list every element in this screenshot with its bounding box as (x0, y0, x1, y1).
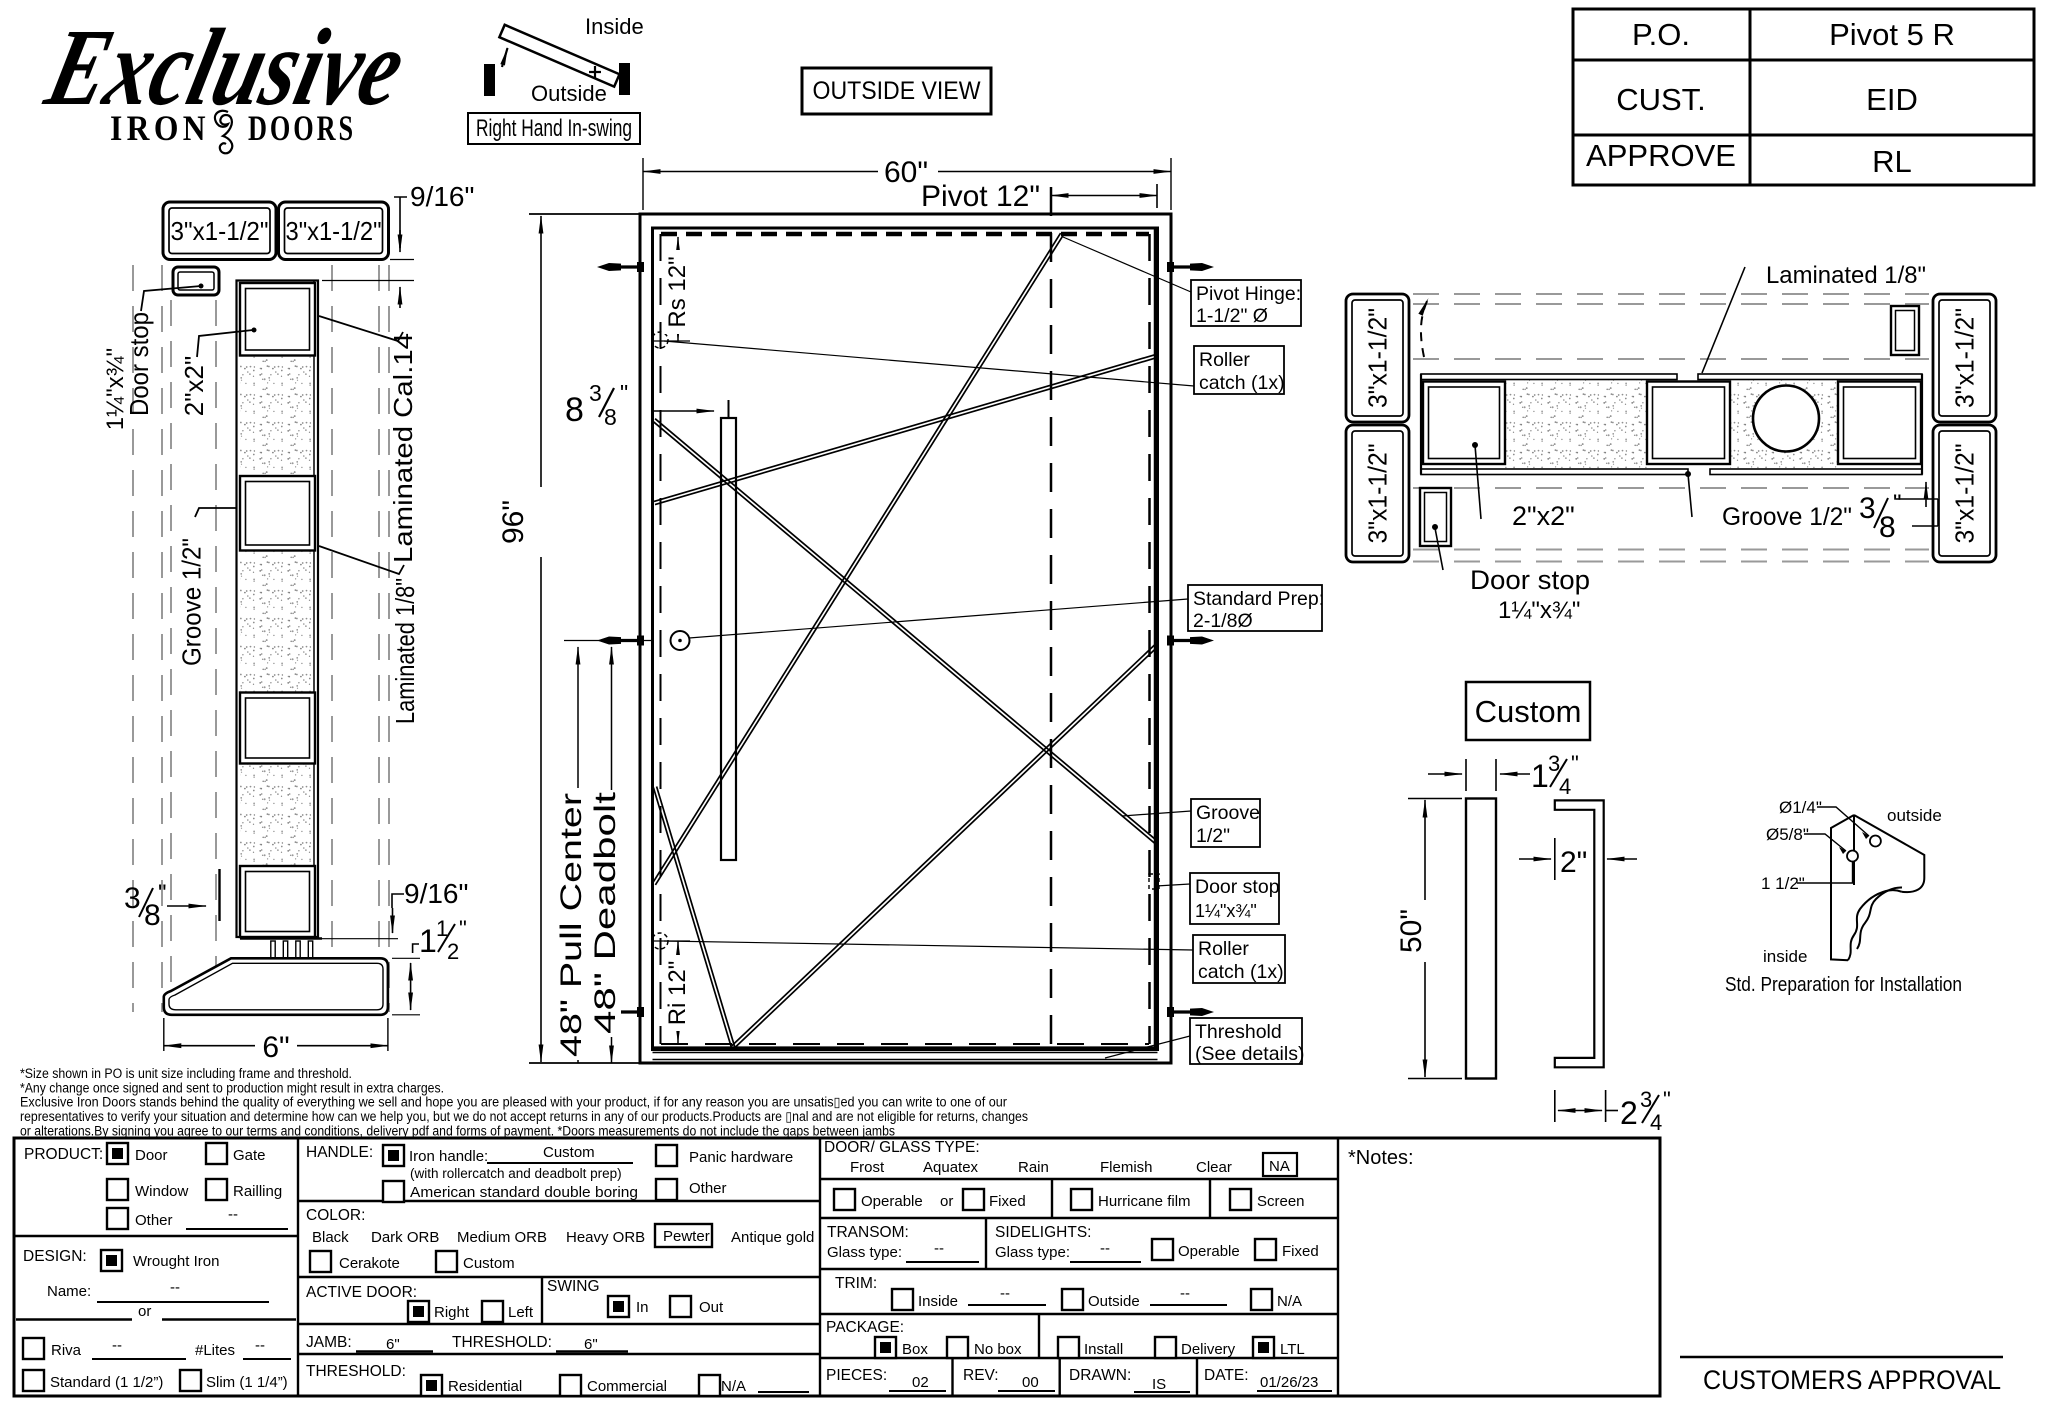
svg-text:Std. Preparation for Installat: Std. Preparation for Installation (1725, 974, 1962, 996)
svg-text:Exclusive Iron Doors stands be: Exclusive Iron Doors stands behind the q… (20, 1095, 1007, 1110)
svg-text:*Notes:: *Notes: (1348, 1147, 1414, 1169)
svg-text:50": 50" (1395, 909, 1428, 953)
svg-text:": " (1663, 1087, 1671, 1112)
svg-text:THRESHOLD:: THRESHOLD: (452, 1334, 552, 1351)
svg-text:inside: inside (1763, 947, 1807, 966)
svg-text:APPROVE: APPROVE (1586, 138, 1736, 173)
svg-text:--: -- (255, 1337, 265, 1354)
svg-text:3"x1-1/2": 3"x1-1/2" (1363, 308, 1393, 408)
svg-text:Commercial: Commercial (587, 1378, 667, 1395)
svg-text:Railling: Railling (233, 1183, 282, 1200)
svg-text:P.O.: P.O. (1632, 17, 1690, 52)
svg-text:catch (1x): catch (1x) (1199, 372, 1285, 394)
svg-text:Other: Other (135, 1212, 173, 1229)
svg-text:Residential: Residential (448, 1378, 522, 1395)
svg-text:Gate: Gate (233, 1147, 266, 1164)
svg-text:Cerakote: Cerakote (339, 1255, 400, 1272)
svg-text:3"x1-1/2": 3"x1-1/2" (286, 216, 382, 246)
svg-text:Medium ORB: Medium ORB (457, 1229, 547, 1246)
svg-text:Black: Black (312, 1229, 349, 1246)
svg-text:Heavy ORB: Heavy ORB (566, 1229, 645, 1246)
svg-text:Laminated 1/8": Laminated 1/8" (390, 578, 420, 724)
svg-text:N/A: N/A (1277, 1293, 1302, 1310)
svg-text:Door stop: Door stop (1195, 876, 1280, 898)
svg-text:or: or (138, 1303, 151, 1320)
svg-text:3"x1-1/2": 3"x1-1/2" (1950, 308, 1980, 408)
svg-text:Left: Left (508, 1304, 534, 1321)
svg-text:Groove 1/2": Groove 1/2" (1722, 503, 1852, 531)
svg-text:": " (459, 916, 467, 941)
svg-text:Custom: Custom (463, 1255, 515, 1272)
svg-text:Panic hardware: Panic hardware (689, 1149, 793, 1166)
svg-text:DOOR/ GLASS TYPE:: DOOR/ GLASS TYPE: (824, 1139, 980, 1156)
svg-text:Laminated 1/8": Laminated 1/8" (1766, 262, 1926, 289)
svg-text:Frost: Frost (850, 1159, 885, 1176)
svg-text:or alterations.By signing you: or alterations.By signing you agree to o… (20, 1123, 895, 1138)
svg-text:Groove 1/2": Groove 1/2" (177, 538, 207, 666)
svg-text:9/16": 9/16" (410, 181, 474, 212)
svg-text:Fixed: Fixed (1282, 1243, 1319, 1260)
svg-text:Antique gold: Antique gold (731, 1229, 814, 1246)
svg-text:Operable: Operable (1178, 1243, 1240, 1260)
svg-text:Aquatex: Aquatex (923, 1159, 979, 1176)
svg-text:In: In (636, 1299, 649, 1316)
svg-text:Roller: Roller (1198, 938, 1249, 960)
svg-text:Pivot 12": Pivot 12" (921, 180, 1040, 213)
svg-text:3: 3 (589, 380, 602, 406)
svg-text:2"x2": 2"x2" (1512, 501, 1575, 531)
svg-text:--: -- (1100, 1240, 1110, 1257)
svg-text:PIECES:: PIECES: (826, 1367, 887, 1384)
svg-text:3"x1-1/2": 3"x1-1/2" (1363, 444, 1393, 544)
svg-text:Other: Other (689, 1180, 727, 1197)
svg-text:01/26/23: 01/26/23 (1260, 1374, 1318, 1391)
svg-text:Glass type:: Glass type: (995, 1244, 1070, 1261)
svg-text:--: -- (1180, 1285, 1190, 1302)
svg-text:--: -- (112, 1337, 122, 1354)
svg-text:ACTIVE DOOR:: ACTIVE DOOR: (306, 1284, 417, 1301)
svg-text:Rain: Rain (1018, 1159, 1049, 1176)
svg-text:": " (1893, 490, 1902, 517)
svg-text:Rs 12": Rs 12" (664, 256, 691, 327)
svg-text:2: 2 (447, 939, 459, 964)
svg-text:DATE:: DATE: (1204, 1367, 1249, 1384)
svg-text:": " (158, 880, 167, 907)
svg-text:THRESHOLD:: THRESHOLD: (306, 1363, 406, 1380)
svg-text:(See details): (See details) (1195, 1043, 1304, 1065)
svg-text:DOORS: DOORS (248, 108, 356, 148)
svg-text:Name:: Name: (47, 1283, 91, 1300)
svg-text:Hurricane film: Hurricane film (1098, 1193, 1191, 1210)
svg-text:4: 4 (1650, 1110, 1662, 1135)
svg-text:8: 8 (565, 391, 584, 429)
svg-text:American standard double borin: American standard double boring (410, 1184, 638, 1201)
svg-text:Groove: Groove (1196, 802, 1260, 824)
svg-text:--: -- (228, 1206, 238, 1223)
svg-text:2-1/8Ø: 2-1/8Ø (1193, 610, 1253, 632)
svg-text:1: 1 (1531, 758, 1549, 794)
svg-text:No box: No box (974, 1341, 1022, 1358)
svg-text:2": 2" (1560, 846, 1587, 879)
svg-text:Pivot Hinge:: Pivot Hinge: (1196, 283, 1301, 305)
svg-text:Riva: Riva (51, 1342, 82, 1359)
svg-text:Delivery: Delivery (1181, 1341, 1236, 1358)
svg-text:TRANSOM:: TRANSOM: (827, 1224, 909, 1241)
svg-text:2"x2": 2"x2" (179, 356, 209, 416)
svg-text:Roller: Roller (1199, 349, 1250, 371)
svg-text:Ø1/4": Ø1/4" (1779, 798, 1822, 817)
svg-text:N/A: N/A (721, 1378, 746, 1395)
svg-text:catch (1x): catch (1x) (1198, 961, 1284, 983)
svg-text:TRIM:: TRIM: (835, 1275, 877, 1292)
svg-text:Inside: Inside (585, 14, 644, 39)
svg-text:REV:: REV: (963, 1367, 999, 1384)
svg-text:LTL: LTL (1280, 1341, 1305, 1358)
svg-text:Threshold: Threshold (1195, 1021, 1282, 1043)
svg-text:Pewter: Pewter (663, 1228, 710, 1245)
svg-text:*Any change once signed and se: *Any change once signed and sent to prod… (20, 1080, 444, 1095)
svg-text:Outside: Outside (1088, 1293, 1140, 1310)
svg-text:Window: Window (135, 1183, 189, 1200)
svg-text:Box: Box (902, 1341, 928, 1358)
svg-text:COLOR:: COLOR: (306, 1207, 365, 1224)
svg-text:OUTSIDE VIEW: OUTSIDE VIEW (813, 77, 981, 105)
svg-text:48" Deadbolt: 48" Deadbolt (589, 791, 622, 1034)
svg-text:(with rollercatch and deadbolt: (with rollercatch and deadbolt prep) (410, 1166, 622, 1181)
svg-text:Slim (1 1/4”): Slim (1 1/4”) (206, 1374, 288, 1391)
svg-text:SWING: SWING (547, 1278, 600, 1295)
svg-text:Outside: Outside (531, 81, 607, 106)
svg-text:PRODUCT:: PRODUCT: (24, 1146, 103, 1163)
svg-text:Pivot 5 R: Pivot 5 R (1829, 17, 1955, 52)
svg-text:or: or (940, 1193, 953, 1210)
svg-text:Dark ORB: Dark ORB (371, 1229, 439, 1246)
svg-text:9/16": 9/16" (404, 878, 468, 909)
svg-text:1: 1 (419, 923, 437, 959)
svg-text:": " (1571, 751, 1579, 776)
svg-text:Ø5/8": Ø5/8" (1766, 825, 1809, 844)
svg-text:1¼"x¾": 1¼"x¾" (102, 348, 129, 430)
svg-text:1/2": 1/2" (1196, 825, 1230, 847)
svg-text:Door stop: Door stop (1470, 565, 1590, 595)
svg-text:Right Hand In-swing: Right Hand In-swing (476, 115, 632, 142)
svg-text:Install: Install (1084, 1341, 1123, 1358)
svg-text:Screen: Screen (1257, 1193, 1305, 1210)
svg-text:3: 3 (1859, 492, 1876, 525)
svg-text:Custom: Custom (1475, 694, 1582, 729)
svg-text:Standard (1 1/2”): Standard (1 1/2”) (50, 1374, 163, 1391)
svg-text:48" Pull Center: 48" Pull Center (555, 793, 588, 1057)
svg-text:EID: EID (1866, 82, 1918, 117)
svg-text:3"x1-1/2": 3"x1-1/2" (1950, 444, 1980, 544)
svg-text:1¼"x¾": 1¼"x¾" (1498, 597, 1580, 624)
svg-text:1-1/2" Ø: 1-1/2" Ø (1196, 305, 1268, 327)
svg-text:Inside: Inside (918, 1293, 958, 1310)
svg-text:Standard Prep:: Standard Prep: (1193, 588, 1324, 610)
svg-text:SIDELIGHTS:: SIDELIGHTS: (995, 1224, 1091, 1241)
svg-text:RL: RL (1872, 144, 1912, 179)
svg-text:Door: Door (135, 1147, 168, 1164)
svg-text:representatives to verify your: representatives to verify your situation… (20, 1109, 1028, 1124)
svg-text:3"x1-1/2": 3"x1-1/2" (171, 216, 269, 246)
svg-text:Right: Right (434, 1304, 470, 1321)
svg-text:CUSTOMERS APPROVAL: CUSTOMERS APPROVAL (1703, 1365, 2001, 1395)
svg-text:Flemish: Flemish (1100, 1159, 1153, 1176)
svg-text:Custom: Custom (543, 1144, 595, 1161)
svg-text:02: 02 (912, 1374, 929, 1391)
svg-text:": " (620, 380, 628, 406)
svg-text:Wrought Iron: Wrought Iron (133, 1253, 219, 1270)
svg-text:HANDLE:: HANDLE: (306, 1144, 373, 1161)
svg-text:*Size shown in PO is unit size: *Size shown in PO is unit size including… (20, 1066, 352, 1081)
svg-text:3: 3 (124, 882, 141, 915)
svg-text:PACKAGE:: PACKAGE: (826, 1319, 904, 1336)
svg-text:#Lites: #Lites (195, 1342, 235, 1359)
svg-text:96": 96" (497, 500, 530, 544)
svg-text:Ri 12": Ri 12" (664, 961, 691, 1026)
svg-text:00: 00 (1022, 1374, 1039, 1391)
svg-text:DESIGN:: DESIGN: (23, 1248, 87, 1265)
svg-text:IS: IS (1152, 1376, 1166, 1393)
svg-text:Clear: Clear (1196, 1159, 1232, 1176)
svg-text:--: -- (170, 1279, 180, 1296)
svg-text:Laminated Cal.14: Laminated Cal.14 (388, 333, 418, 563)
svg-text:IRON: IRON (110, 108, 210, 148)
svg-text:Glass type:: Glass type: (827, 1244, 902, 1261)
svg-text:--: -- (1000, 1285, 1010, 1302)
svg-text:outside: outside (1887, 806, 1942, 825)
svg-text:6": 6" (262, 1031, 289, 1064)
svg-text:Out: Out (699, 1299, 724, 1316)
svg-text:Operable: Operable (861, 1193, 923, 1210)
svg-text:JAMB:: JAMB: (306, 1334, 352, 1351)
svg-text:4: 4 (1559, 774, 1571, 799)
svg-text:CUST.: CUST. (1616, 82, 1706, 117)
svg-text:Fixed: Fixed (989, 1193, 1026, 1210)
svg-text:8: 8 (604, 404, 617, 430)
svg-text:NA: NA (1269, 1158, 1290, 1175)
svg-text:DRAWN:: DRAWN: (1069, 1367, 1131, 1384)
svg-text:--: -- (934, 1240, 944, 1257)
svg-text:2: 2 (1620, 1095, 1638, 1131)
svg-text:1¼"x¾": 1¼"x¾" (1195, 901, 1257, 921)
svg-text:Iron handle:: Iron handle: (409, 1148, 488, 1165)
